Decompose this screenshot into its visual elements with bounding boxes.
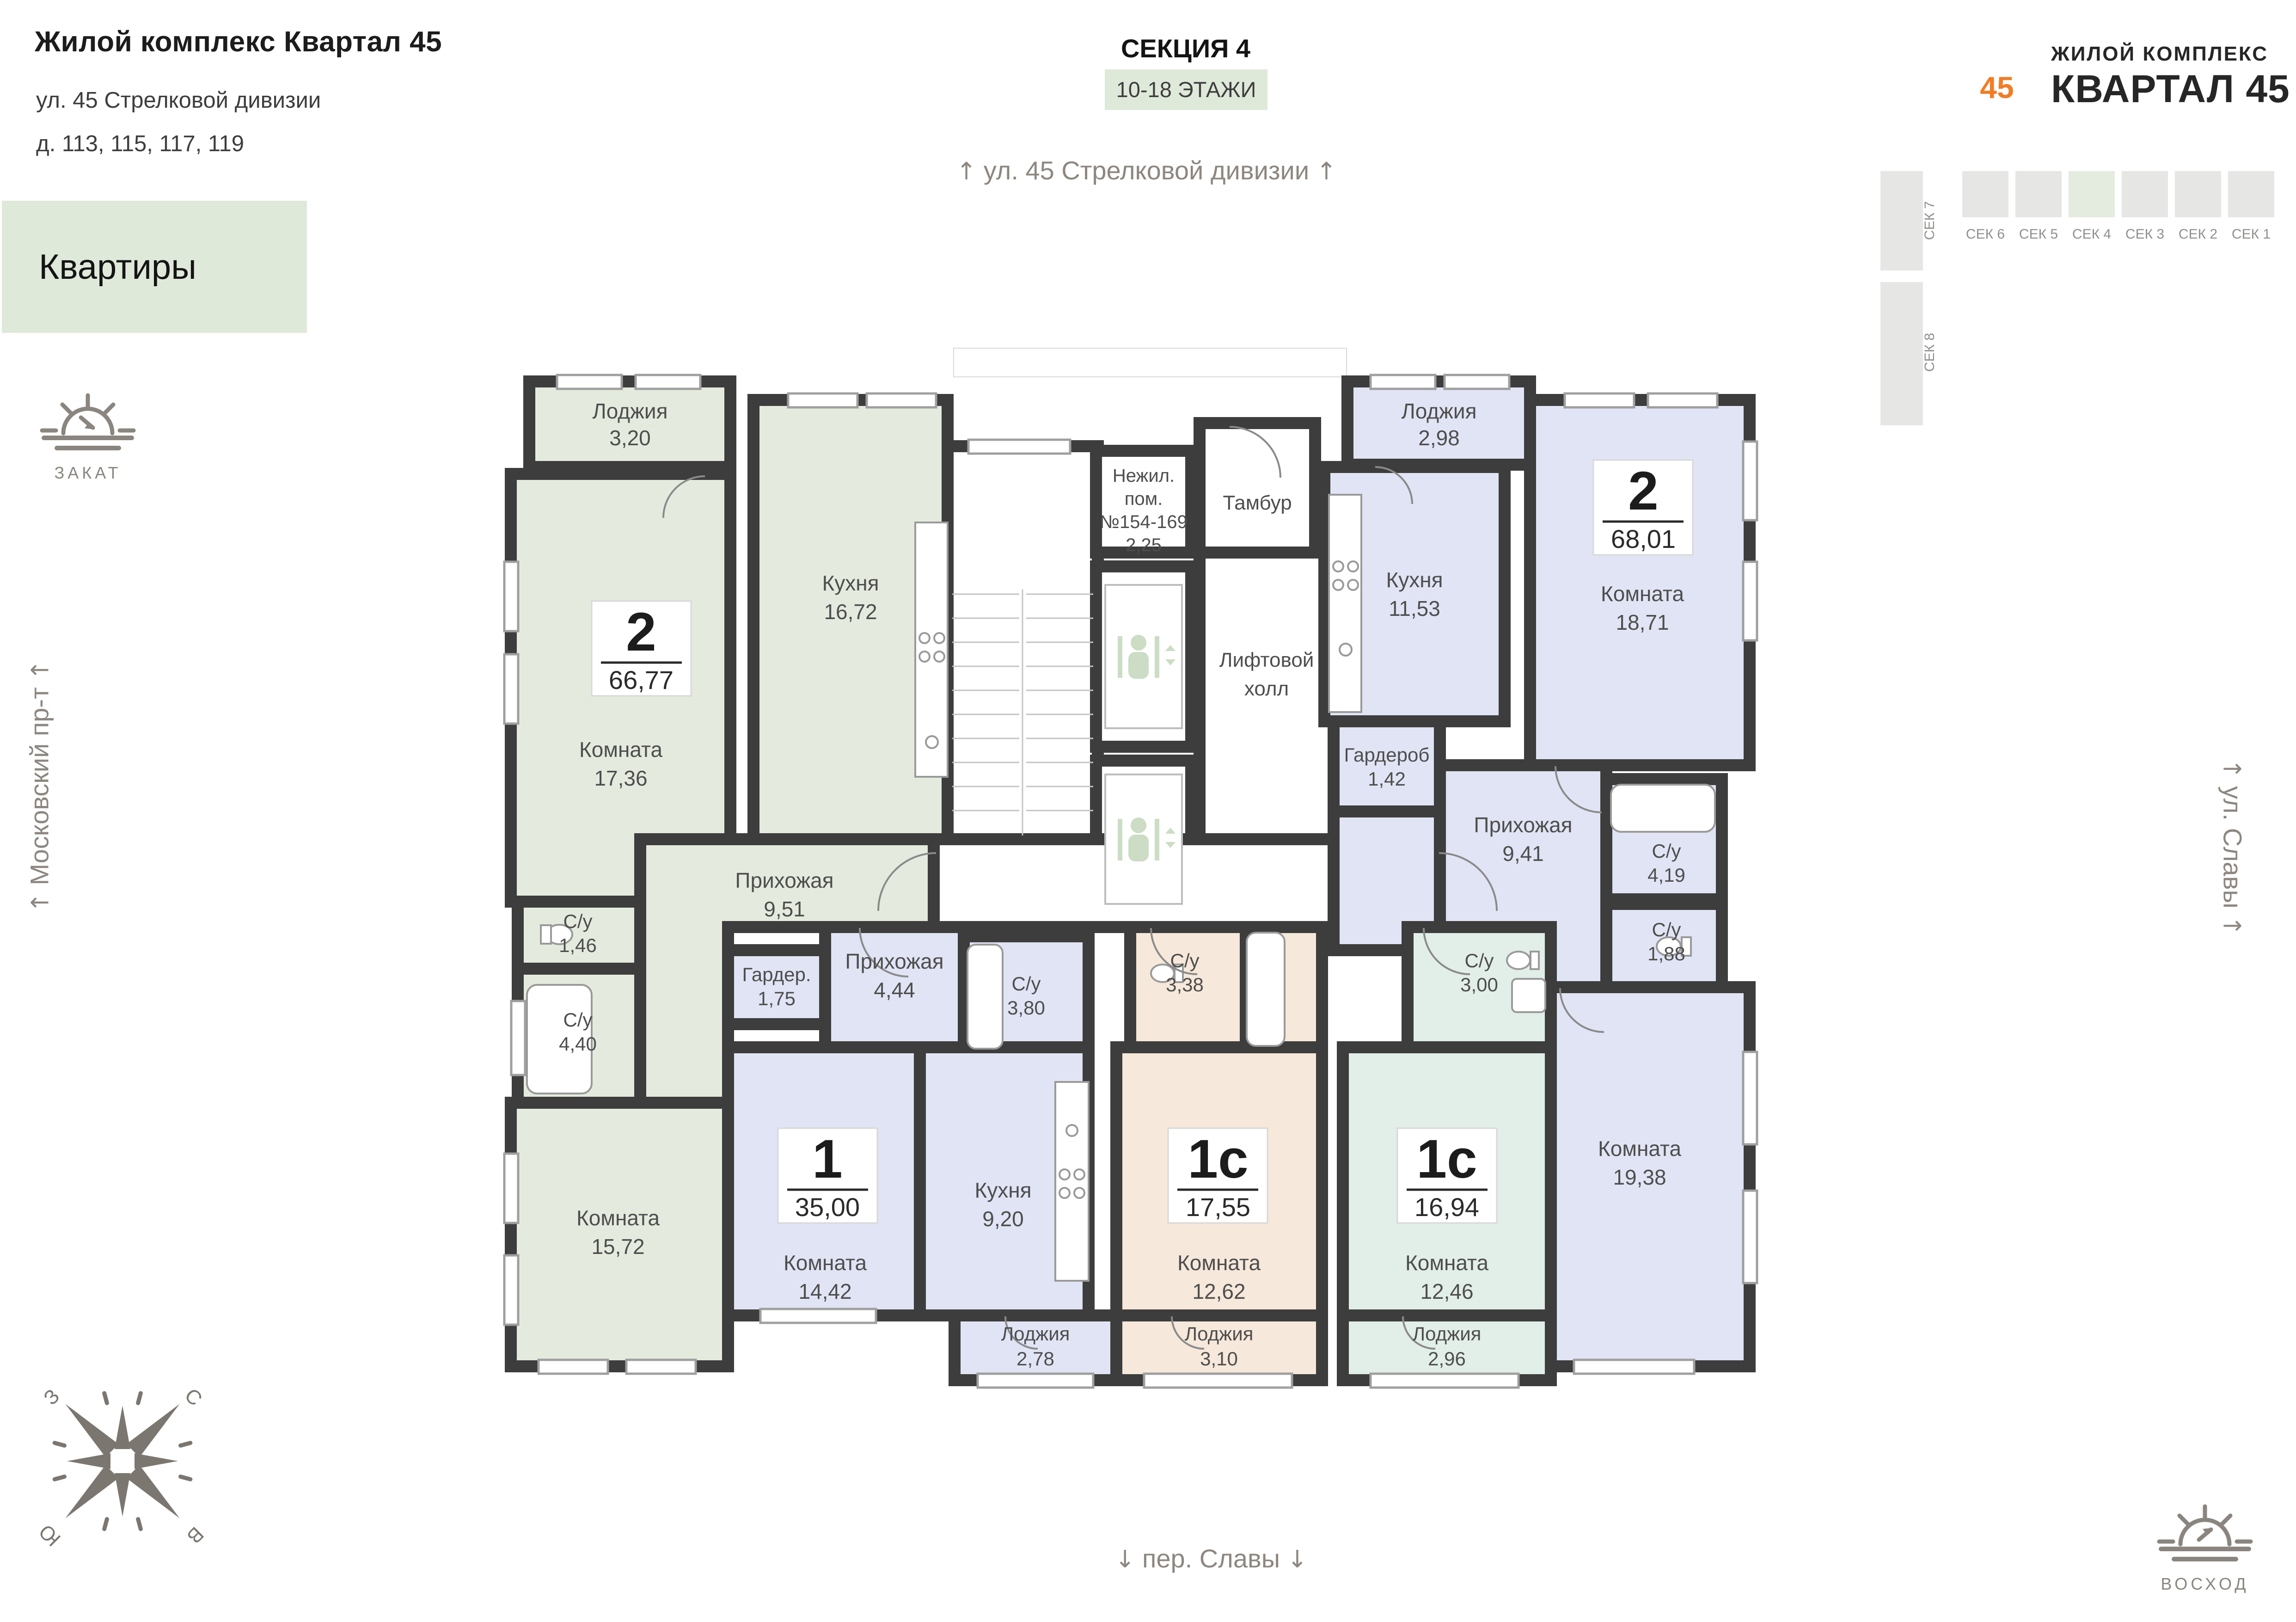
svg-text:16,72: 16,72 bbox=[824, 600, 877, 624]
svg-text:Прихожая: Прихожая bbox=[735, 868, 833, 892]
badge-type: 2 bbox=[1628, 461, 1659, 522]
svg-text:4,40: 4,40 bbox=[559, 1033, 597, 1055]
svg-text:Лоджия: Лоджия bbox=[1413, 1323, 1482, 1345]
section-map: СЕК 7 СЕК 6 СЕК 5 СЕК 4 СЕК 3 СЕК 2 СЕК … bbox=[1877, 164, 2293, 437]
svg-text:С/у: С/у bbox=[563, 1009, 593, 1031]
badge-area: 68,01 bbox=[1611, 524, 1676, 553]
svg-text:3,80: 3,80 bbox=[1007, 997, 1045, 1019]
page-title: Жилой комплекс Квартал 45 bbox=[35, 25, 442, 58]
section-map-block-sek7[interactable] bbox=[1880, 171, 1923, 270]
svg-text:Лоджия: Лоджия bbox=[1185, 1323, 1254, 1345]
svg-text:С/у: С/у bbox=[1465, 950, 1494, 971]
svg-text:Лоджия: Лоджия bbox=[1001, 1323, 1070, 1345]
svg-text:4,44: 4,44 bbox=[874, 978, 915, 1002]
badge-area: 35,00 bbox=[795, 1192, 860, 1222]
svg-text:С/у: С/у bbox=[1012, 973, 1041, 995]
section-map-label-sek4: СЕК 4 bbox=[2069, 227, 2115, 242]
down-arrow-icon: ↓ bbox=[1115, 1546, 1135, 1573]
room-wardrobe-apt2-right[interactable] bbox=[1334, 721, 1440, 811]
section-map-label-sek6: СЕК 6 bbox=[1962, 227, 2008, 242]
section-map-block-sek5[interactable] bbox=[2015, 171, 2062, 217]
svg-text:Комната: Комната bbox=[784, 1251, 867, 1275]
svg-text:15,72: 15,72 bbox=[591, 1235, 644, 1259]
svg-text:1,88: 1,88 bbox=[1647, 943, 1685, 965]
svg-text:Гардероб: Гардероб bbox=[1344, 744, 1430, 766]
svg-text:4,19: 4,19 bbox=[1647, 864, 1685, 886]
compass-south-label: Ю bbox=[35, 1520, 65, 1550]
compass-icon: С З В Ю bbox=[32, 1362, 227, 1565]
street-label-left: ↑ Московский пр-т ↑ bbox=[24, 578, 55, 995]
svg-text:Гардер.: Гардер. bbox=[742, 964, 811, 985]
svg-text:Комната: Комната bbox=[1405, 1251, 1489, 1275]
section-map-label-sek1: СЕК 1 bbox=[2228, 227, 2274, 242]
svg-text:С/у: С/у bbox=[1652, 919, 1681, 940]
svg-text:№154-169: №154-169 bbox=[1100, 512, 1188, 532]
svg-text:3,00: 3,00 bbox=[1460, 974, 1498, 995]
svg-text:2,98: 2,98 bbox=[1418, 426, 1460, 450]
svg-text:Лифтовой: Лифтовой bbox=[1219, 649, 1314, 671]
badge-type: 1с bbox=[1416, 1129, 1477, 1190]
svg-text:С/у: С/у bbox=[1170, 950, 1200, 971]
address-line-1: ул. 45 Стрелковой дивизии bbox=[36, 79, 321, 122]
svg-text:Лоджия: Лоджия bbox=[593, 399, 668, 423]
svg-text:С/у: С/у bbox=[563, 910, 593, 932]
logo-line-2: КВАРТАЛ 45 bbox=[2051, 67, 2290, 111]
logo-line-1: ЖИЛОЙ КОМПЛЕКС bbox=[2051, 43, 2290, 66]
svg-text:9,20: 9,20 bbox=[982, 1207, 1024, 1231]
up-arrow-icon: ↑ bbox=[27, 892, 55, 913]
section-title: СЕКЦИЯ 4 bbox=[1047, 33, 1324, 63]
svg-text:Кухня: Кухня bbox=[1386, 568, 1443, 592]
svg-text:Кухня: Кухня bbox=[822, 571, 879, 595]
svg-text:Тамбур: Тамбур bbox=[1223, 492, 1292, 514]
svg-text:1,46: 1,46 bbox=[559, 934, 597, 956]
svg-text:Комната: Комната bbox=[1177, 1251, 1261, 1275]
sunset-label: ЗАКАТ bbox=[35, 463, 141, 483]
svg-text:12,46: 12,46 bbox=[1420, 1279, 1473, 1303]
svg-text:18,71: 18,71 bbox=[1616, 610, 1669, 634]
up-arrow-icon: ↑ bbox=[2218, 915, 2246, 936]
svg-text:Прихожая: Прихожая bbox=[1474, 813, 1572, 837]
sunrise-icon bbox=[2152, 1493, 2258, 1569]
compass-west-label: З bbox=[39, 1385, 64, 1409]
section-map-block-sek2[interactable] bbox=[2175, 171, 2221, 217]
svg-text:2,78: 2,78 bbox=[1016, 1348, 1054, 1370]
section-map-label-sek8: СЕК 8 bbox=[1922, 325, 1938, 380]
floors-badge: 10-18 ЭТАЖИ bbox=[1105, 69, 1267, 110]
address: ул. 45 Стрелковой дивизии д. 113, 115, 1… bbox=[36, 79, 321, 166]
logo-star-number: 45 bbox=[1980, 70, 2014, 104]
section-map-block-sek1[interactable] bbox=[2228, 171, 2274, 217]
svg-text:Комната: Комната bbox=[1598, 1137, 1682, 1161]
logo-text: ЖИЛОЙ КОМПЛЕКС КВАРТАЛ 45 bbox=[2051, 43, 2290, 111]
badge-type: 1 bbox=[812, 1129, 843, 1190]
up-arrow-icon: ↑ bbox=[2218, 759, 2246, 779]
apartments-tab-label: Квартиры bbox=[39, 247, 196, 287]
room-wardrobe-apt1[interactable] bbox=[728, 950, 825, 1024]
apartment-badge-1c-teal[interactable]: 1с 16,94 bbox=[1397, 1128, 1497, 1223]
section-map-label-sek7: СЕК 7 bbox=[1922, 193, 1938, 248]
apartments-tab[interactable]: Квартиры bbox=[2, 201, 307, 333]
svg-text:12,62: 12,62 bbox=[1192, 1279, 1245, 1303]
svg-text:3,38: 3,38 bbox=[1166, 974, 1204, 995]
badge-area: 66,77 bbox=[609, 665, 673, 694]
sunset-icon bbox=[35, 381, 141, 458]
svg-text:Комната: Комната bbox=[576, 1206, 660, 1230]
svg-text:Лоджия: Лоджия bbox=[1402, 399, 1477, 423]
svg-text:Комната: Комната bbox=[579, 737, 663, 762]
apartment-badge-2-left[interactable]: 2 66,77 bbox=[592, 601, 691, 696]
floor-plan: 2 66,77 2 68,01 1 35,00 1с 17,55 1с 16,9… bbox=[502, 368, 1773, 1408]
street-label-top: ↑ ул. 45 Стрелковой дивизии ↑ bbox=[878, 155, 1414, 185]
section-map-label-sek3: СЕК 3 bbox=[2122, 227, 2168, 242]
compass-north-label: С bbox=[180, 1384, 207, 1410]
logo-star-icon: 45 bbox=[1944, 31, 2052, 142]
section-map-label-sek5: СЕК 5 bbox=[2015, 227, 2062, 242]
badge-type: 2 bbox=[626, 602, 656, 663]
svg-text:Комната: Комната bbox=[1601, 582, 1684, 606]
svg-text:холл: холл bbox=[1244, 677, 1289, 700]
up-arrow-icon: ↑ bbox=[27, 660, 55, 680]
badge-type: 1с bbox=[1188, 1129, 1248, 1190]
svg-text:19,38: 19,38 bbox=[1613, 1165, 1666, 1189]
street-label-right: ↑ ул. Славы ↑ bbox=[2218, 686, 2248, 1009]
svg-text:1,75: 1,75 bbox=[758, 988, 796, 1009]
up-arrow-icon: ↑ bbox=[1316, 158, 1337, 185]
svg-text:Прихожая: Прихожая bbox=[845, 949, 943, 973]
compass-east-label: В bbox=[183, 1523, 208, 1548]
room-loggia-apt2-right[interactable] bbox=[1347, 381, 1530, 465]
svg-text:С/у: С/у bbox=[1652, 840, 1681, 862]
section-map-block-sek8[interactable] bbox=[1880, 282, 1923, 425]
section-map-block-sek6[interactable] bbox=[1962, 171, 2008, 217]
section-map-label-sek2: СЕК 2 bbox=[2175, 227, 2221, 242]
svg-text:1,42: 1,42 bbox=[1368, 768, 1406, 790]
address-line-2: д. 113, 115, 117, 119 bbox=[36, 122, 321, 166]
sunrise-label: ВОСХОД bbox=[2152, 1574, 2258, 1594]
svg-text:17,36: 17,36 bbox=[594, 766, 647, 790]
svg-text:14,42: 14,42 bbox=[798, 1279, 851, 1303]
section-map-block-sek4[interactable] bbox=[2069, 171, 2115, 217]
apartment-badge-2-right[interactable]: 2 68,01 bbox=[1593, 460, 1693, 555]
svg-text:пом.: пом. bbox=[1125, 489, 1163, 509]
svg-text:9,41: 9,41 bbox=[1502, 842, 1544, 866]
svg-text:9,51: 9,51 bbox=[764, 897, 805, 921]
svg-text:Кухня: Кухня bbox=[974, 1178, 1031, 1202]
section-map-block-sek3[interactable] bbox=[2122, 171, 2168, 217]
street-label-bottom: ↓ пер. Славы ↓ bbox=[980, 1543, 1442, 1573]
apartment-badge-1-middle[interactable]: 1 35,00 bbox=[778, 1128, 877, 1223]
svg-text:3,10: 3,10 bbox=[1200, 1348, 1238, 1370]
badge-area: 16,94 bbox=[1414, 1192, 1479, 1222]
up-arrow-icon: ↑ bbox=[956, 158, 977, 185]
badge-area: 17,55 bbox=[1186, 1192, 1250, 1222]
apartment-badge-1c-beige[interactable]: 1с 17,55 bbox=[1168, 1128, 1267, 1223]
svg-text:Нежил.: Нежил. bbox=[1113, 466, 1175, 486]
svg-text:11,53: 11,53 bbox=[1389, 596, 1440, 621]
svg-text:2,25: 2,25 bbox=[1126, 535, 1162, 555]
down-arrow-icon: ↓ bbox=[1287, 1546, 1308, 1573]
room-loggia-apt2-left[interactable] bbox=[529, 381, 730, 467]
svg-text:3,20: 3,20 bbox=[609, 426, 651, 450]
room-tambour bbox=[1200, 423, 1315, 553]
svg-text:2,96: 2,96 bbox=[1428, 1348, 1466, 1370]
